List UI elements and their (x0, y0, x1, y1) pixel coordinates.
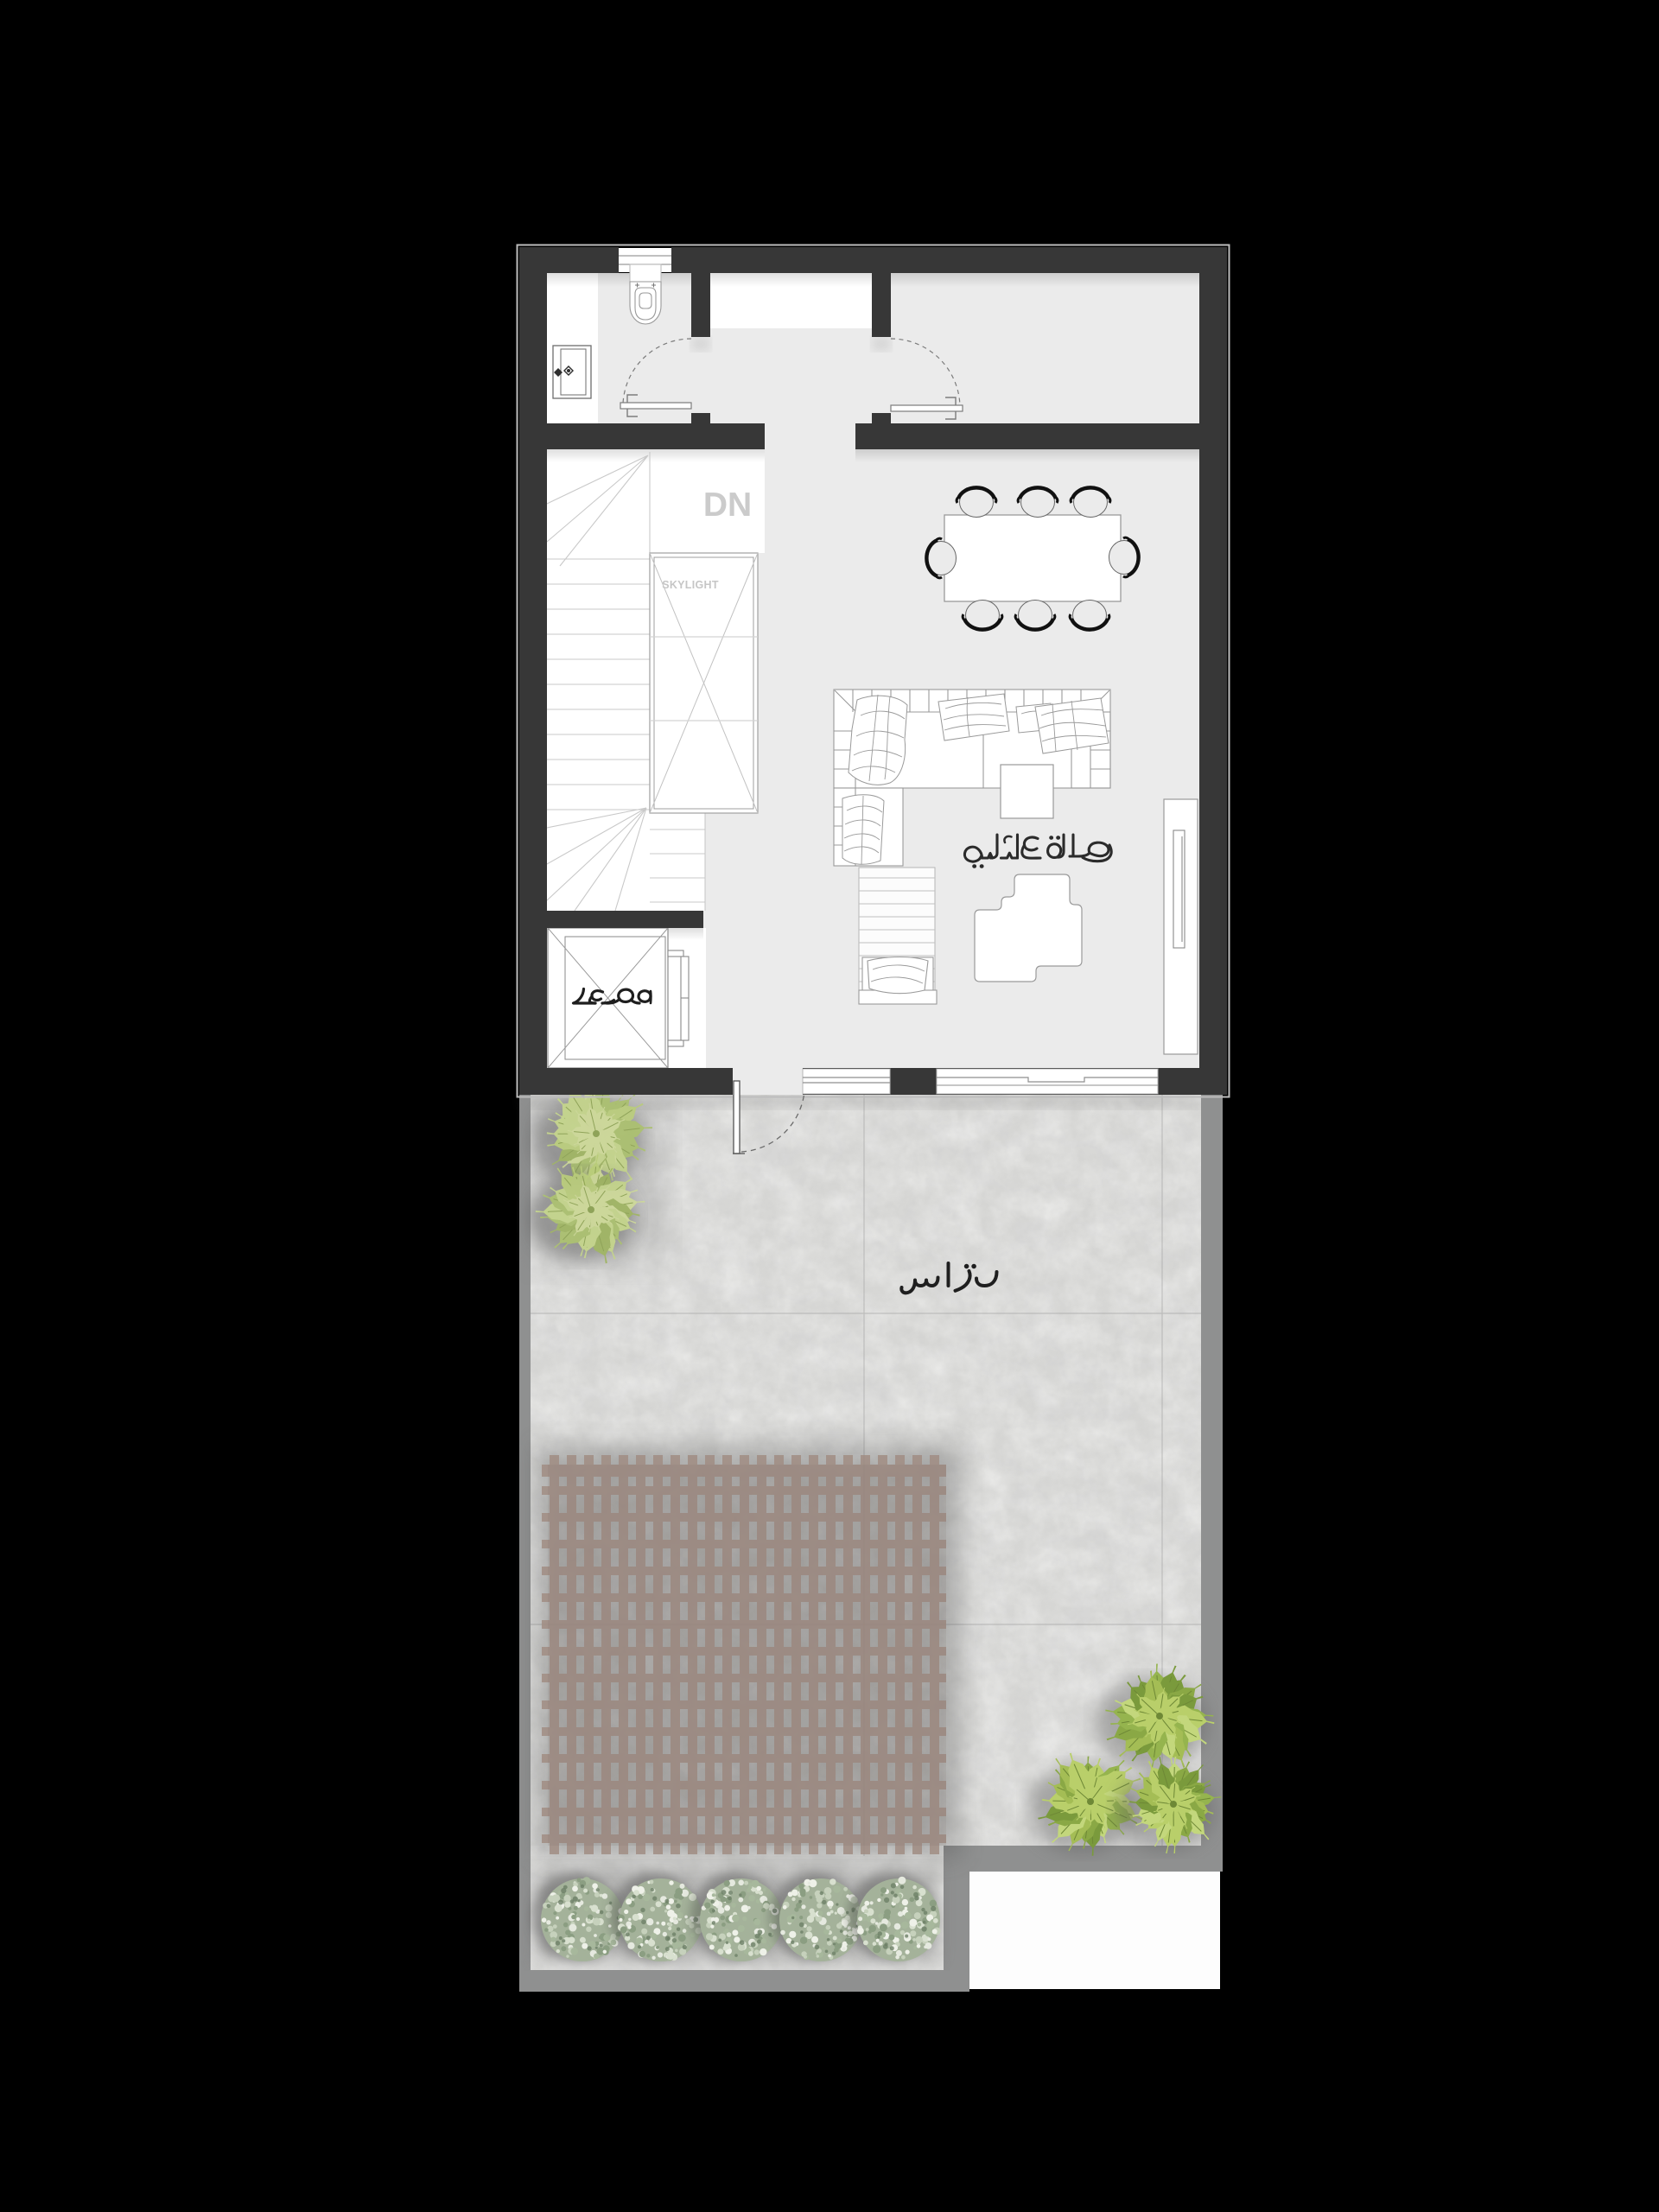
svg-text:SKYLIGHT: SKYLIGHT (662, 579, 719, 591)
svg-text:DN: DN (703, 486, 752, 524)
